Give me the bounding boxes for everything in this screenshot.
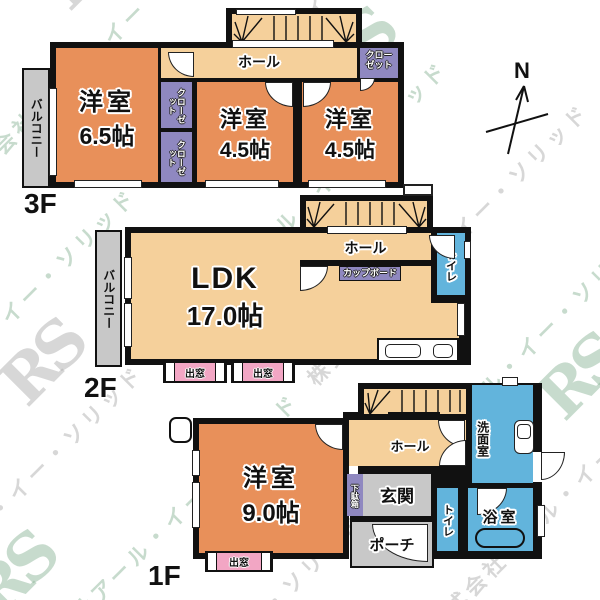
bay-cap xyxy=(207,553,217,570)
ac-unit-icon xyxy=(169,417,192,443)
cupboard: カップボード xyxy=(339,266,401,281)
bay-window-1f-label: 出窓 xyxy=(217,554,261,569)
stairs-1f-steps xyxy=(364,389,466,414)
bedroom-9-name: 洋室 xyxy=(199,458,343,493)
window-2f-left-2 xyxy=(124,303,132,347)
window-3f-bottom-2 xyxy=(205,180,279,188)
watermark-text: 株式会社アール・イー・ソリッド xyxy=(0,357,151,600)
bedroom-4-5r-size: 4.5帖 xyxy=(302,134,398,164)
window-2f-right xyxy=(457,303,465,336)
bathroom-label: 浴室 xyxy=(468,506,533,527)
ldk-size: 17.0帖 xyxy=(140,296,310,333)
floor2-label: 2F xyxy=(84,372,117,404)
window-washroom-top xyxy=(502,377,518,386)
washroom-label: 洗面室 xyxy=(476,408,489,470)
door-arc-exterior xyxy=(541,452,565,480)
bay-window-2f-left: 出窓 xyxy=(163,361,227,383)
window-3f-bottom-3 xyxy=(308,180,386,188)
stairs-3f-steps xyxy=(232,14,356,42)
bedroom-6-5-label: 洋室 6.5帖 xyxy=(56,82,158,151)
closet-a-label: クローゼット xyxy=(166,85,185,127)
bedroom-6-5-size: 6.5帖 xyxy=(56,117,158,151)
balcony-2f-label: バルコニー xyxy=(102,269,115,329)
stairs-3f-window xyxy=(236,9,296,15)
washbasin-bowl xyxy=(517,424,531,439)
bedroom-4-5m-name: 洋室 xyxy=(197,102,293,134)
ldk-name: LDK xyxy=(140,262,310,296)
ldk-label: LDK 17.0帖 xyxy=(140,262,310,333)
stairs-3f-rail xyxy=(232,40,334,48)
toilet-1f-label: トイレ xyxy=(441,492,453,548)
stairs-2f-rail xyxy=(327,226,407,234)
floorplan-image: 株式会社アール・イー・ソリッド 株式会社アール・イー・ソリッド 株式会社アール・… xyxy=(0,0,600,600)
balcony-3f-label: バルコニー xyxy=(30,98,43,158)
bay-cap xyxy=(261,553,271,570)
watermark-logo: RS xyxy=(0,519,70,600)
closet-b-label: クローゼット xyxy=(166,136,185,180)
window-3f-bottom-1 xyxy=(74,180,142,188)
bedroom-4-5m-label: 洋室 4.5帖 xyxy=(197,102,293,164)
kitchen-counter xyxy=(377,338,459,362)
balcony-3f: バルコニー xyxy=(22,68,50,188)
compass-n: N xyxy=(514,58,530,83)
hall-1f-label: ホール xyxy=(364,436,456,455)
bay-cap xyxy=(283,363,293,381)
bay-window-2f-right: 出窓 xyxy=(231,361,295,383)
bathtub xyxy=(475,528,525,548)
bedroom-9-size: 9.0帖 xyxy=(199,493,343,528)
stairs-1f-svg xyxy=(364,389,466,414)
cupboard-label: カップボード xyxy=(340,267,400,280)
hall-3f-label: ホール xyxy=(161,52,357,72)
balcony-2f: バルコニー xyxy=(95,230,122,367)
closet-tr-label: クローゼット xyxy=(362,50,396,71)
bedroom-6-5-name: 洋室 xyxy=(56,82,158,117)
compass-north-icon: N xyxy=(478,52,562,164)
bay-cap xyxy=(215,363,225,381)
bedroom-9-label: 洋室 9.0帖 xyxy=(199,458,343,528)
shoe-cabinet: 下駄箱 xyxy=(347,474,363,516)
bedroom-4-5r-label: 洋室 4.5帖 xyxy=(302,102,398,164)
bay-cap xyxy=(165,363,175,381)
watermark-logo: RS xyxy=(28,0,141,24)
kitchen-sink xyxy=(385,344,421,358)
stairs-2f-steps xyxy=(306,201,427,227)
hall-2f-label: ホール xyxy=(300,238,431,258)
entrance-label: 玄関 xyxy=(363,482,431,507)
window-bathroom-right xyxy=(537,505,545,537)
floor3-label: 3F xyxy=(24,188,57,220)
stairs-2f-svg xyxy=(306,201,427,227)
shoe-cabinet-label: 下駄箱 xyxy=(350,478,358,514)
porch-label: ポーチ xyxy=(350,534,434,555)
kitchen-stove xyxy=(433,344,453,358)
stairs-3f-svg xyxy=(232,14,356,42)
watermark-text: 株式会社アール・イー・ソリッド xyxy=(0,181,144,477)
stairs-1f-wall xyxy=(388,412,440,419)
bay-cap xyxy=(233,363,243,381)
stairs-2f-window xyxy=(403,184,433,196)
washbasin xyxy=(514,420,534,454)
bedroom-4-5m-size: 4.5帖 xyxy=(197,134,293,164)
bay-window-2f-right-label: 出窓 xyxy=(243,365,283,380)
floor1-label: 1F xyxy=(148,560,181,592)
bedroom-4-5r-name: 洋室 xyxy=(302,102,398,134)
toilet-2f-window xyxy=(464,241,471,259)
window-2f-left-1 xyxy=(124,257,132,299)
bay-window-2f-left-label: 出窓 xyxy=(175,365,215,380)
bay-window-1f: 出窓 xyxy=(205,551,273,572)
